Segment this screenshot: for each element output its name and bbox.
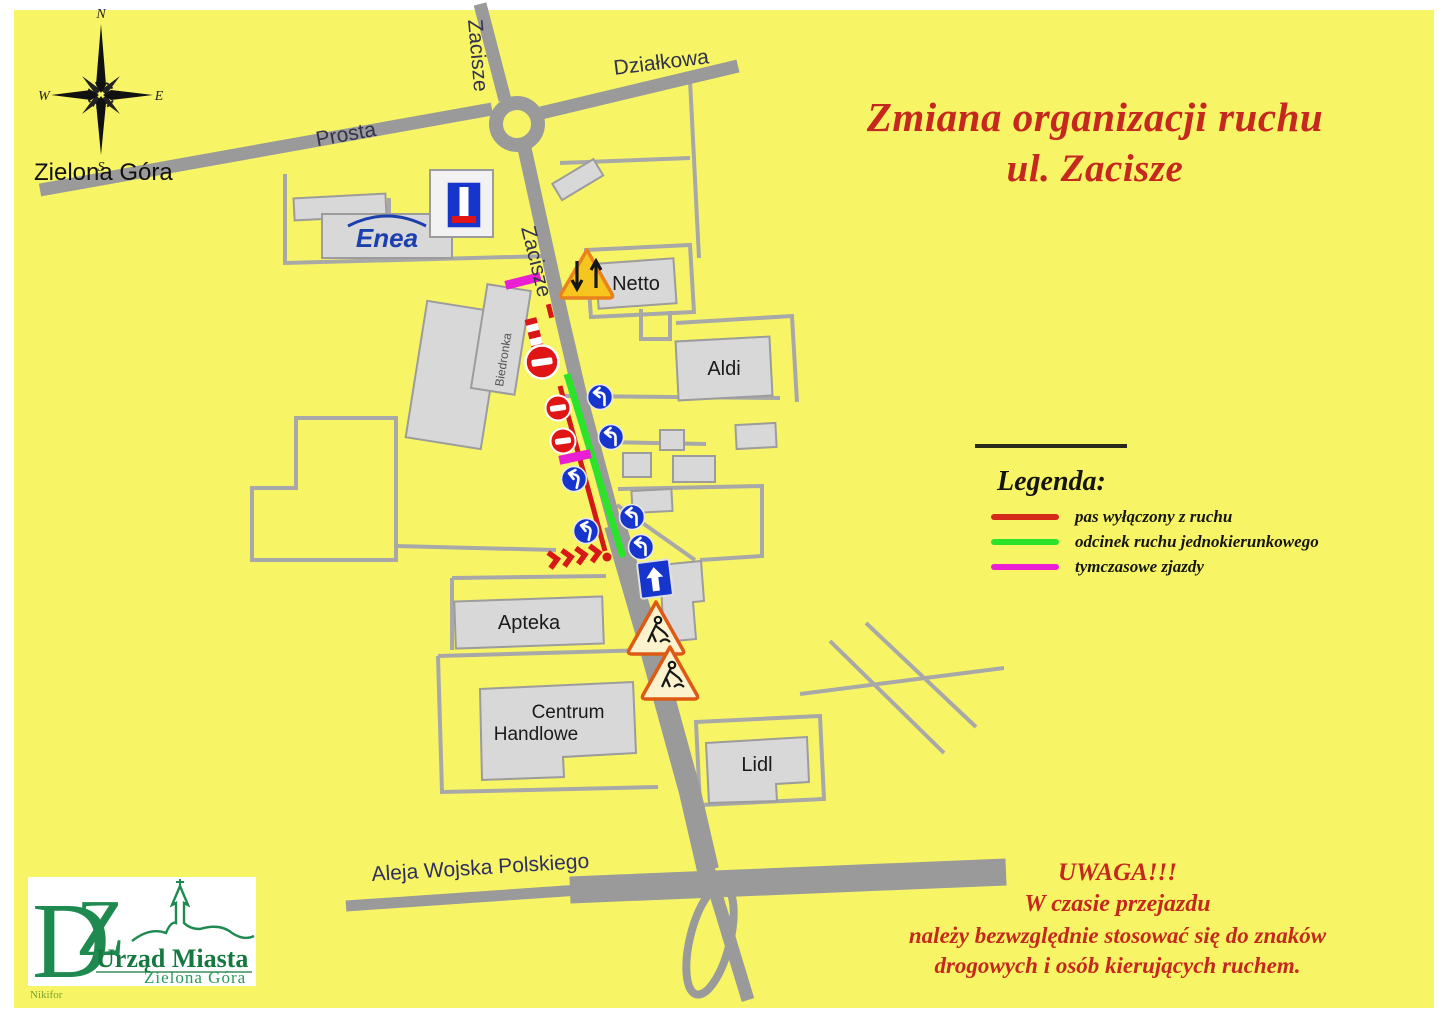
label-netto: Netto [612, 273, 660, 295]
label-centrum: Centrum [532, 702, 605, 723]
one-way-swatch [989, 537, 1061, 547]
warning-line3: należy bezwzględnie stosować się do znak… [845, 921, 1390, 951]
legend-divider [975, 444, 1127, 448]
no-entry-sign [546, 396, 571, 421]
chevron-icon [562, 549, 572, 566]
closed-lane-end-dot [603, 553, 612, 562]
signature: Nikifor [30, 989, 62, 1001]
street-label-aleja: Aleja Wojska Polskiego [371, 850, 590, 886]
traffic-change-poster: Prosta Działkowa Zacisze Zacisze Aleja W… [0, 0, 1448, 1024]
legend-item-closed-lane: pas wyłączony z ruchu [989, 508, 1385, 526]
mandatory-turn-sign [588, 385, 613, 410]
label-aldi: Aldi [707, 358, 740, 380]
compass-n: N [95, 7, 106, 22]
street-label-prosta: Prosta [314, 118, 378, 151]
temp-exits-swatch [989, 562, 1061, 572]
legend-item-label: pas wyłączony z ruchu [1075, 507, 1232, 527]
city-label: Zielona Góra [34, 159, 173, 186]
closed-lane-swatch [989, 512, 1061, 522]
building [673, 456, 715, 482]
one-way-sign [637, 559, 673, 599]
no-entry-sign [526, 346, 559, 379]
minor-road [830, 641, 944, 753]
label-handlowe: Handlowe [494, 724, 579, 745]
street-label-zacisze-top: Zacisze [463, 18, 492, 92]
minor-road [800, 668, 1004, 694]
minor-road [396, 546, 556, 550]
title-line2: ul. Zacisze [800, 144, 1390, 193]
road-aleja-west [346, 890, 580, 906]
compass-arms [51, 24, 153, 155]
minor-road [700, 556, 762, 560]
mandatory-turn-sign [599, 425, 624, 450]
building [735, 423, 776, 449]
sign-bar [452, 216, 476, 223]
warning-line1: UWAGA!!! [845, 856, 1390, 889]
poster-title: Zmiana organizacji ruchu ul. Zacisze [800, 92, 1390, 193]
city-office-logo: D Z Urząd Miasta Zielona Góra [28, 877, 256, 986]
logo-city-name: Zielona Góra [144, 968, 246, 986]
building [623, 453, 651, 477]
chevron-icon [548, 551, 558, 568]
minor-road [690, 80, 699, 258]
legend-item-one-way: odcinek ruchu jednokierunkowego [989, 533, 1385, 551]
warning-line4: drogowych i osób kierujących ruchem. [845, 951, 1390, 981]
legend-title: Legenda: [997, 466, 1385, 498]
warning-note: UWAGA!!! W czasie przejazdu należy bezwz… [845, 856, 1390, 981]
building [660, 430, 684, 450]
legend: Legenda: pas wyłączony z ruchu odcinek r… [975, 444, 1385, 576]
minor-road [560, 158, 690, 163]
mandatory-turn-sign [620, 505, 645, 530]
label-enea: Enea [356, 223, 418, 253]
label-apteka: Apteka [498, 612, 561, 634]
chevron-icon [590, 545, 600, 562]
legend-item-label: tymczasowe zjazdy [1075, 557, 1204, 577]
label-lidl: Lidl [741, 754, 772, 776]
warning-line2: W czasie przejazdu [845, 889, 1390, 921]
minor-road [252, 418, 396, 560]
mandatory-turn-sign [629, 535, 654, 560]
compass-rose: N E S W [38, 7, 164, 175]
compass-w: W [38, 89, 51, 104]
no-entry-sign [551, 429, 576, 454]
building [552, 159, 603, 200]
no-through-road-sign [447, 182, 481, 228]
legend-item-label: odcinek ruchu jednokierunkowego [1075, 532, 1319, 552]
roundabout [496, 103, 538, 145]
legend-item-temp-exits: tymczasowe zjazdy [989, 558, 1385, 576]
compass-e: E [154, 89, 164, 104]
title-line1: Zmiana organizacji ruchu [800, 92, 1390, 144]
chevron-icon [576, 547, 586, 564]
